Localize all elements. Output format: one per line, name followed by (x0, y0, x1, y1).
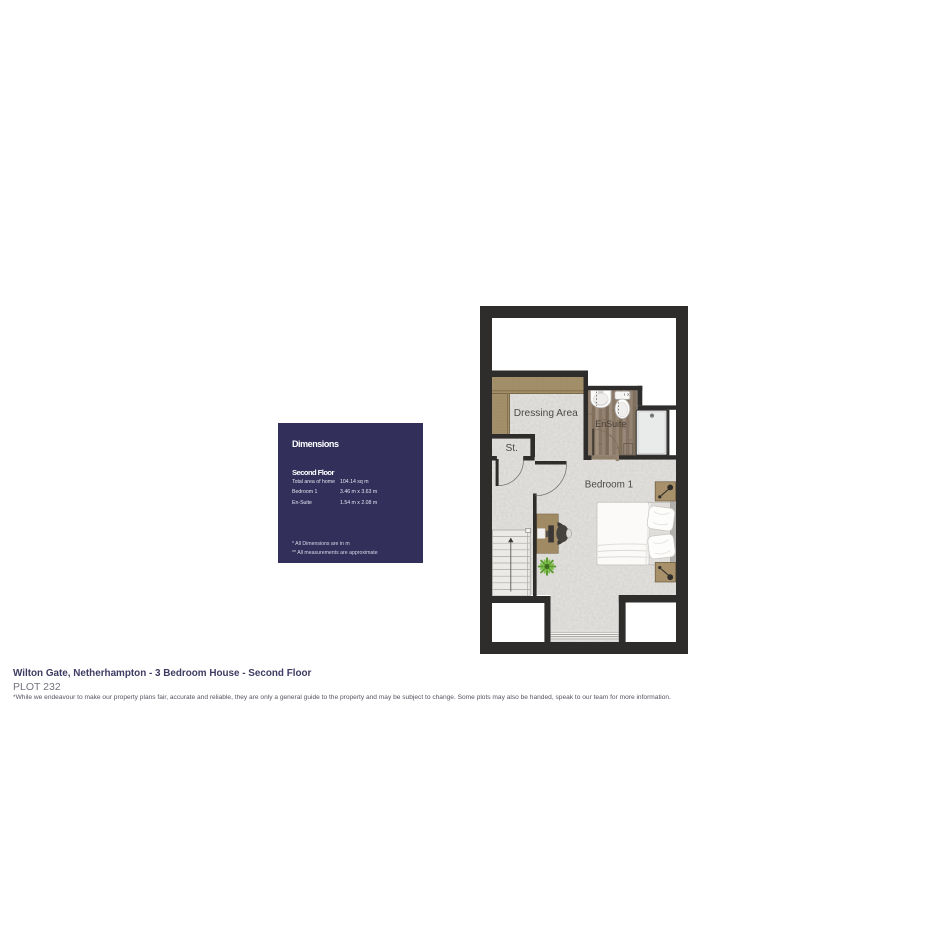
svg-text:EnSuite: EnSuite (595, 419, 626, 429)
svg-text:St.: St. (506, 443, 518, 454)
svg-text:Bedroom 1: Bedroom 1 (585, 479, 634, 490)
svg-text:Dressing Area: Dressing Area (514, 408, 578, 419)
